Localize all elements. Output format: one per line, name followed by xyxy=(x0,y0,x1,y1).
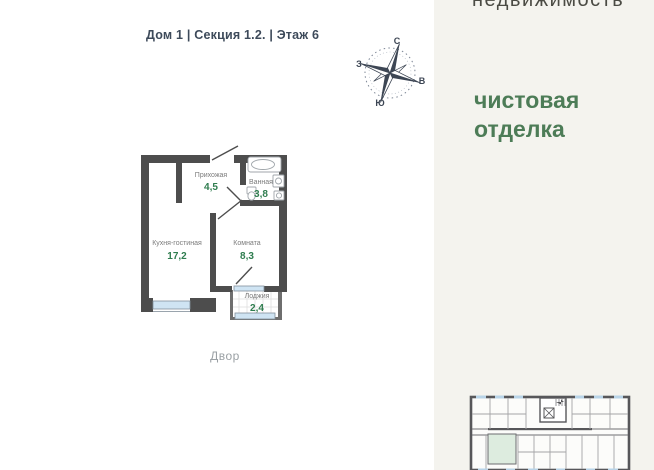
room-label-kitchen-living: Кухня-гостиная xyxy=(152,240,202,247)
room-label-loggia: Лоджия xyxy=(245,293,270,300)
sidebar: недвижимость чистовая отделка xyxy=(434,0,654,470)
apartment-floor-plan: Прихожая 4,5 Ванная 3,8 Кухня-гостиная 1… xyxy=(130,145,300,335)
room-area-bathroom: 3,8 xyxy=(254,189,268,200)
room-area-loggia: 2,4 xyxy=(250,303,264,314)
room-label-hallway: Прихожая xyxy=(195,172,228,179)
compass-south-label: Ю xyxy=(375,98,384,108)
stair-core xyxy=(540,398,566,422)
floor-plan-area: Дом 1 | Секция 1.2. | Этаж 6 xyxy=(0,0,434,470)
room-area-kitchen-living: 17,2 xyxy=(167,251,187,262)
brand-text: недвижимость xyxy=(472,0,624,12)
compass-rose-icon: С В Ю З xyxy=(353,34,427,108)
compass-west-label: З xyxy=(356,59,362,69)
courtyard-label: Двор xyxy=(150,349,300,363)
room-area-hallway: 4,5 xyxy=(204,182,218,193)
building-key-plan[interactable] xyxy=(468,392,634,470)
location-title: Дом 1 | Секция 1.2. | Этаж 6 xyxy=(146,28,319,42)
room-label-bathroom: Ванная xyxy=(249,179,273,186)
listing-page: Дом 1 | Секция 1.2. | Этаж 6 xyxy=(0,0,654,470)
highlighted-unit[interactable] xyxy=(488,434,516,464)
finish-type-label: чистовая отделка xyxy=(474,86,624,145)
compass-east-label: В xyxy=(419,76,426,86)
room-area-room: 8,3 xyxy=(240,251,254,262)
compass-north-label: С xyxy=(394,36,401,46)
room-label-room: Комната xyxy=(233,240,261,247)
